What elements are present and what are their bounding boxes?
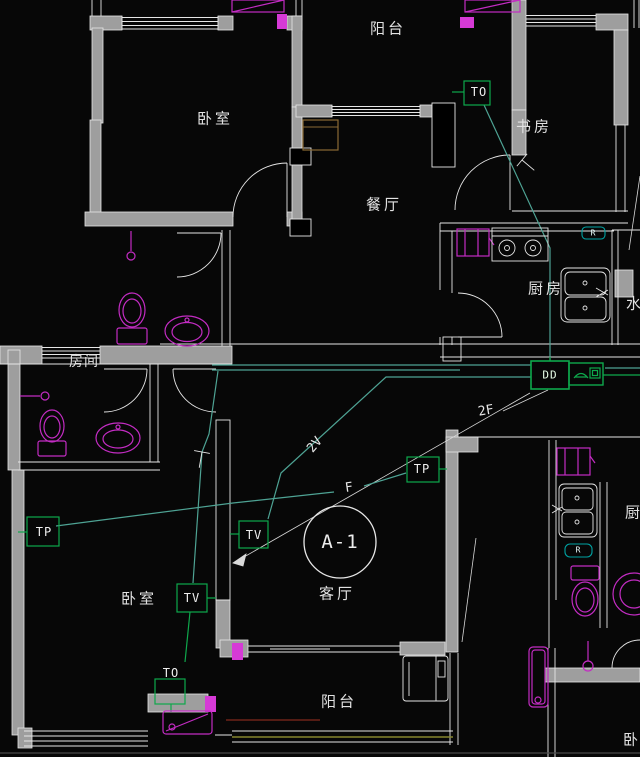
- wire-2v-run: [268, 377, 531, 519]
- leader-lines-layer: [233, 176, 640, 642]
- sockets-layer: [18, 81, 640, 712]
- shower-right-unit: [583, 641, 593, 671]
- leader-balcony: [462, 538, 476, 642]
- wire-left-drop: [193, 371, 218, 583]
- door-hall: [173, 369, 216, 412]
- basin-right-unit: [613, 573, 640, 615]
- window-balcony-top: [332, 105, 420, 117]
- cabinet-right-unit: [557, 448, 595, 475]
- socket-box-tv-living: [239, 521, 268, 548]
- washing-machine: [403, 656, 448, 701]
- toilet-lower: [38, 410, 66, 456]
- shower-lower: [20, 392, 49, 400]
- wire-corridor: [212, 365, 531, 370]
- fixtures-white-layer: [191, 154, 610, 701]
- door-bath-lower: [104, 369, 147, 412]
- window-study: [526, 16, 596, 27]
- leader-2f: [503, 390, 548, 411]
- toilet-right-unit: [571, 566, 599, 616]
- r-badge-right-unit: [565, 544, 592, 557]
- appliance-top-left: [232, 0, 284, 12]
- walls-layer: [0, 0, 640, 748]
- basin-lower: [96, 423, 140, 453]
- window-bedroom-top: [122, 16, 218, 30]
- columns-layer: [290, 103, 461, 361]
- door-bedroom-top: [233, 163, 287, 217]
- bathtub-right-unit: [529, 647, 548, 707]
- door-right-unit: [612, 640, 640, 668]
- stove: [492, 228, 548, 261]
- brown-cabinet: [303, 120, 338, 150]
- window-room: [42, 348, 100, 359]
- leader-arrowhead: [233, 554, 246, 566]
- socket-box-tp-bedroom: [27, 517, 59, 546]
- floor-plan-canvas: 阳台 卧室 书房 餐厅 厨房 水 房间 客厅 卧室 阳台 厨 卧 A-1 TO …: [0, 0, 640, 757]
- leader-right-edge: [629, 176, 640, 250]
- kitchen-cabinet: [457, 229, 494, 256]
- badges-layer: [565, 227, 605, 557]
- doors-layer: [104, 155, 640, 668]
- shower-upper: [127, 231, 135, 260]
- basin-upper: [165, 316, 209, 346]
- unit-circle: [304, 506, 376, 578]
- sink-kitchen: [561, 268, 610, 322]
- leader-long: [237, 393, 530, 561]
- tv-tap-symbol-study: [517, 154, 540, 177]
- socket-box-to-study: [464, 81, 490, 105]
- window-bedroom-bottom: [24, 731, 148, 746]
- intercom-square-icon: [590, 368, 600, 378]
- wire-f-run: [56, 473, 406, 526]
- sliding-door-living: [248, 646, 400, 652]
- door-study: [455, 155, 510, 210]
- sink-right-unit: [552, 484, 597, 537]
- door-bath-upper: [177, 233, 221, 277]
- plan-drawing: [0, 0, 640, 757]
- bathtub-bottom-left: [163, 711, 212, 734]
- r-badge-kitchen: [582, 227, 605, 239]
- phone-handset-icon: [574, 374, 588, 379]
- door-kitchen: [458, 293, 502, 337]
- toilet-upper: [117, 293, 147, 344]
- distribution-box: [531, 361, 569, 389]
- socket-box-tv-bedroom: [177, 584, 207, 612]
